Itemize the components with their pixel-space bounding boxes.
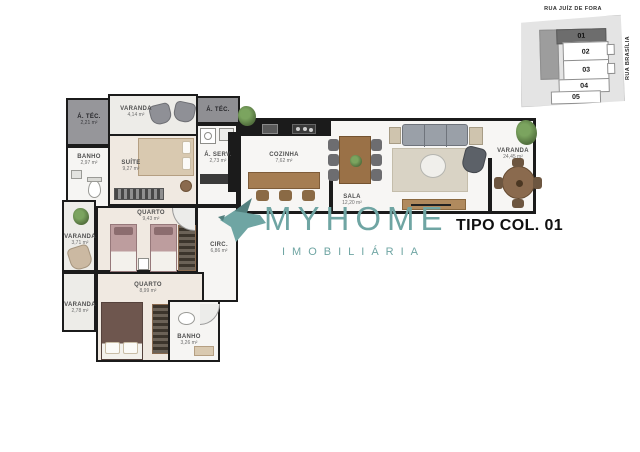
stove-icon [292, 124, 316, 134]
bed-pillow [105, 342, 120, 354]
chair-icon [533, 177, 542, 189]
brand-subtitle: IMOBILIÁRIA [282, 246, 425, 258]
plant-icon [73, 208, 89, 225]
room-varanda-2: VARANDA 3,71 m² [62, 200, 96, 272]
round-table-icon [502, 166, 535, 199]
side-table-icon [389, 127, 401, 144]
unit-05: 05 [551, 90, 601, 104]
room-area: 2,21 m² [81, 121, 98, 127]
armchair-icon [172, 100, 197, 124]
chair-icon [371, 154, 382, 166]
sink-icon [71, 170, 82, 179]
room-varanda-suite: VARANDA 4,14 m² [108, 94, 198, 136]
chair-icon [371, 139, 382, 151]
bird-icon [218, 196, 266, 244]
room-area-tecnica-1: Á. TÉC. 2,21 m² [66, 98, 110, 146]
kitchen-sink-icon [262, 124, 278, 134]
chair-icon [512, 199, 524, 208]
armchair-icon [148, 102, 173, 126]
sofa-icon [402, 124, 468, 146]
armchair-icon [66, 243, 94, 272]
street-label-top: RUA JUÍZ DE FORA [518, 6, 628, 12]
street-label-right: RUA BRASÍLIA [625, 36, 631, 80]
toilet-icon [178, 312, 195, 325]
dining-table-icon [339, 136, 371, 184]
bed-pillow [154, 227, 173, 235]
washer-door [204, 132, 212, 140]
room-banho-suite: BANHO 2,97 m² [66, 146, 112, 208]
wall-segment [228, 132, 238, 192]
shower-icon [200, 304, 220, 325]
chair-icon [512, 158, 524, 167]
plan-title: TIPO COL. 01 [456, 217, 563, 235]
coffee-table-icon [420, 154, 446, 178]
wardrobe-icon [152, 304, 169, 354]
room-suite: SUÍTE 9,27 m² [108, 134, 198, 206]
room-area-tecnica-2: Á. TÉC. [196, 96, 240, 124]
bath-mat [194, 346, 214, 356]
bed-pillow [123, 342, 138, 354]
bed-pillow [114, 227, 133, 235]
chair-icon [494, 177, 503, 189]
chair-icon [328, 154, 339, 166]
side-table-icon [180, 180, 192, 192]
balcony-notch [607, 44, 615, 55]
room-label: Á. TÉC. [77, 114, 100, 121]
wardrobe-icon [178, 225, 196, 271]
balcony-notch [607, 63, 615, 74]
location-key-map: RUA JUÍZ DE FORA RUA BRASÍLIA 01 02 03 0… [518, 2, 638, 110]
toilet-icon [88, 180, 101, 198]
side-table-icon [469, 127, 483, 145]
myhome-logo: MYHOME IMOBILIÁRIA [218, 194, 448, 274]
brand-name: MYHOME [264, 200, 449, 238]
floorplan-page: Á. TÉC. 2,21 m² VARANDA 4,14 m² Á. TÉC. … [0, 0, 640, 452]
plant-icon [516, 120, 537, 145]
kitchen-island-icon [248, 172, 320, 189]
room-varanda-3: VARANDA 2,78 m² [62, 272, 96, 332]
chair-icon [328, 139, 339, 151]
toilet-tank [87, 177, 102, 182]
site-plot: 01 02 03 04 05 [519, 15, 625, 108]
chair-icon [371, 169, 382, 181]
bed-pillow [182, 157, 191, 170]
plant-icon [238, 106, 256, 126]
nightstand-icon [138, 258, 149, 270]
wall-segment [488, 158, 492, 211]
rug-icon [114, 188, 164, 200]
kitchen-counter [241, 121, 331, 136]
bed-pillow [182, 141, 191, 154]
chair-icon [328, 169, 339, 181]
room-banho-2: BANHO 3,26 m² [168, 300, 220, 362]
